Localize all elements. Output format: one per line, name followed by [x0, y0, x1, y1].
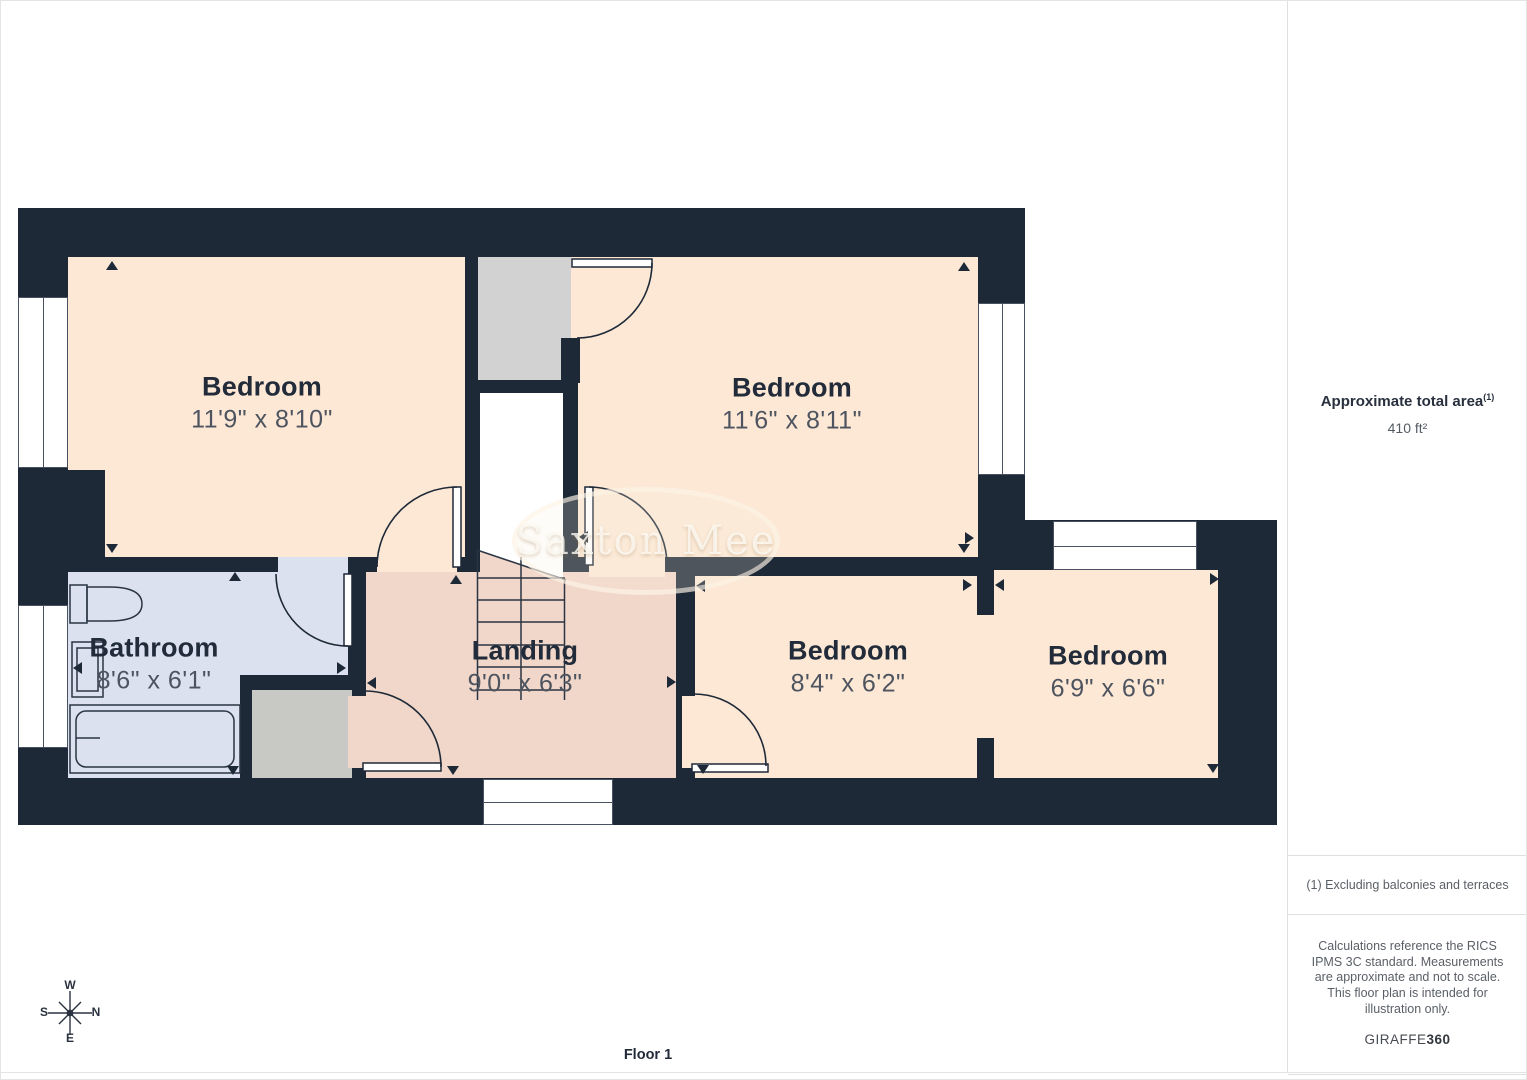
- label-bedroom-4: Bedroom 6'9" x 6'6": [1048, 641, 1168, 704]
- total-area-footnote-marker: (1): [1483, 392, 1494, 402]
- closet-top: [478, 257, 571, 380]
- room-dimensions: 11'6" x 8'11": [722, 407, 862, 436]
- closet-door-stub: [561, 338, 580, 383]
- closet-bottom-door-opening: [348, 696, 366, 768]
- bedroom-1-chimney-notch: [68, 470, 105, 557]
- room-dimensions: 11'9" x 8'10": [191, 406, 333, 435]
- floorplan-page: Bedroom 11'9" x 8'10" Bedroom 11'6" x 8'…: [0, 0, 1527, 1080]
- brand-logo: GIRAFFE360: [1288, 1032, 1527, 1047]
- total-area-label-text: Approximate total area: [1321, 393, 1484, 410]
- footnote-box: (1) Excluding balconies and terraces: [1288, 855, 1527, 915]
- label-bedroom-2: Bedroom 11'6" x 8'11": [722, 373, 862, 436]
- compass-w: W: [64, 978, 75, 992]
- room-title: Bedroom: [191, 372, 333, 403]
- room-title: Bedroom: [1048, 641, 1168, 672]
- bedroom-3-4-opening: [977, 615, 994, 738]
- room-dimensions: 9'0" x 6'3": [468, 670, 583, 699]
- label-landing: Landing 9'0" x 6'3": [468, 636, 583, 699]
- window-left-lower: [18, 605, 68, 748]
- info-sidebar: Approximate total area(1) 410 ft² (1) Ex…: [1287, 0, 1527, 1073]
- room-title: Bedroom: [722, 373, 862, 404]
- footnote-text: (1) Excluding balconies and terraces: [1306, 878, 1508, 892]
- disclaimer-box: Calculations reference the RICS IPMS 3C …: [1288, 915, 1527, 1075]
- bedroom-3-door-opening: [682, 696, 695, 768]
- compass-n: N: [92, 1005, 101, 1019]
- compass-e: E: [66, 1031, 74, 1045]
- label-bedroom-1: Bedroom 11'9" x 8'10": [191, 372, 333, 435]
- room-dimensions: 8'4" x 6'2": [788, 670, 908, 699]
- room-title: Bedroom: [788, 636, 908, 667]
- window-right: [978, 303, 1025, 475]
- room-title: Bathroom: [89, 633, 218, 664]
- room-dimensions: 8'6" x 6'1": [89, 667, 218, 696]
- bedroom-1-door-opening: [377, 557, 457, 572]
- page-bottom-rule: [0, 1072, 1527, 1073]
- window-extension-top: [1053, 521, 1197, 570]
- closet-door-opening: [571, 257, 578, 338]
- disclaimer-text: Calculations reference the RICS IPMS 3C …: [1305, 939, 1511, 1017]
- label-bathroom: Bathroom 8'6" x 6'1": [89, 633, 218, 696]
- window-bottom: [483, 779, 613, 825]
- brand-suffix: 360: [1426, 1032, 1450, 1047]
- total-area-block: Approximate total area(1) 410 ft²: [1288, 392, 1527, 436]
- room-dimensions: 6'9" x 6'6": [1048, 675, 1168, 704]
- watermark-text: Saxton Mee: [516, 518, 777, 564]
- total-area-label: Approximate total area(1): [1288, 392, 1527, 410]
- room-title: Landing: [468, 636, 583, 667]
- bathroom-door-opening: [278, 557, 348, 572]
- watermark-ellipse: Saxton Mee: [512, 487, 780, 595]
- total-area-value: 410 ft²: [1288, 420, 1527, 436]
- compass-s: S: [40, 1005, 48, 1019]
- brand-name: GIRAFFE: [1364, 1032, 1426, 1047]
- closet-bottom: [252, 690, 352, 778]
- window-left-upper: [18, 297, 68, 468]
- floor-title: Floor 1: [624, 1047, 672, 1063]
- label-bedroom-3: Bedroom 8'4" x 6'2": [788, 636, 908, 699]
